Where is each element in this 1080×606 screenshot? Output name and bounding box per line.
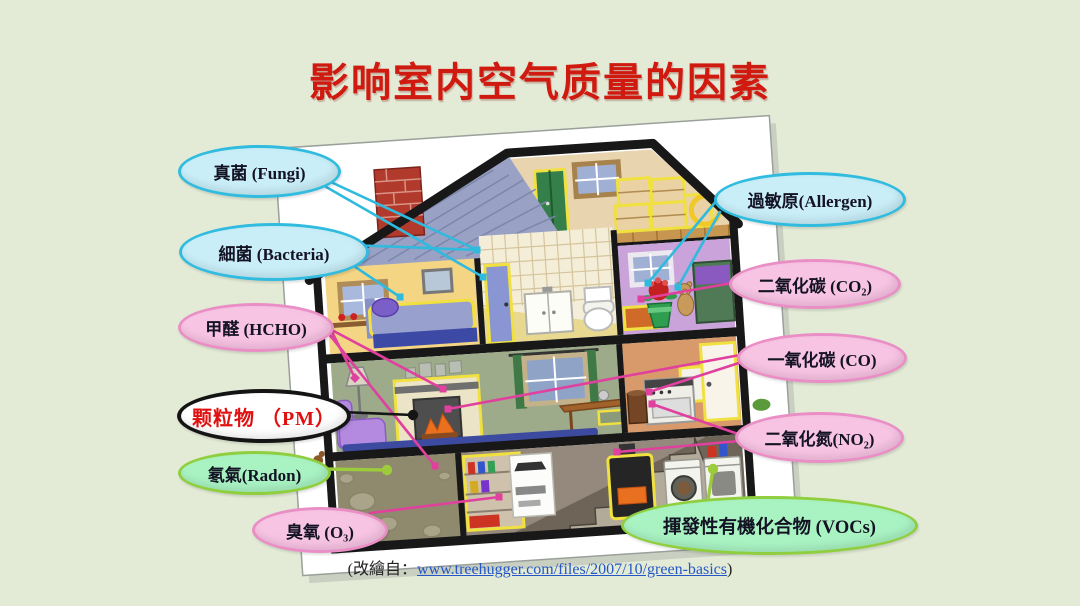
- citation-suffix: ): [727, 561, 732, 578]
- citation-link[interactable]: www.treehugger.com/files/2007/10/green-b…: [417, 561, 727, 578]
- label-bubble-co2: 二氧化碳 (CO₂): [729, 259, 901, 309]
- exterior-door: [700, 342, 739, 420]
- wall-vent: [599, 410, 624, 425]
- bubble-label: 二氧化氮(NO₂): [765, 425, 875, 450]
- label-bubble-radon: 氡氣(Radon): [178, 451, 331, 495]
- kitchen: [622, 336, 742, 432]
- bubble-label: 真菌 (Fungi): [213, 159, 305, 184]
- citation: (改繪自：www.treehugger.com/files/2007/10/gr…: [0, 555, 1080, 579]
- label-bubble-no2: 二氧化氮(NO₂): [735, 412, 904, 463]
- bubble-label: 一氧化碳 (CO): [767, 346, 876, 371]
- label-bubble-bacteria: 細菌 (Bacteria): [179, 223, 369, 281]
- label-bubble-vocs: 揮發性有機化合物 (VOCs): [621, 496, 918, 555]
- house-illustration: [0, 0, 1080, 606]
- bubble-label: 細菌 (Bacteria): [219, 240, 330, 265]
- label-bubble-hcho: 甲醛 (HCHO): [178, 303, 334, 352]
- picture-frame: [423, 269, 452, 293]
- slide-background: 影响室内空气质量的因素: [0, 0, 1080, 606]
- trash-can: [627, 389, 647, 423]
- bubble-label: 二氧化碳 (CO₂): [758, 272, 872, 297]
- label-bubble-ozone: 臭氧 (O₃): [252, 507, 388, 553]
- label-bubble-pm: 颗粒物 （PM）: [177, 389, 351, 443]
- photocopier: [509, 453, 555, 518]
- bubble-label: 颗粒物 （PM）: [192, 402, 336, 431]
- bathroom: [479, 227, 620, 344]
- label-bubble-fungi: 真菌 (Fungi): [178, 145, 341, 198]
- toilet: [582, 286, 615, 331]
- bubble-label: 氡氣(Radon): [208, 461, 302, 486]
- bubble-label: 揮發性有機化合物 (VOCs): [663, 513, 876, 539]
- bubble-label: 甲醛 (HCHO): [205, 315, 307, 340]
- attic-window: [574, 162, 620, 197]
- label-bubble-allergen: 過敏原(Allergen): [714, 172, 906, 227]
- bathroom-door: [485, 264, 514, 343]
- living-window: [509, 349, 602, 409]
- label-bubble-co: 一氧化碳 (CO): [737, 333, 907, 383]
- green-bed: [693, 261, 735, 323]
- bubble-label: 臭氧 (O₃): [286, 518, 354, 543]
- bubble-label: 過敏原(Allergen): [748, 187, 873, 212]
- citation-prefix: (改繪自：: [348, 561, 417, 578]
